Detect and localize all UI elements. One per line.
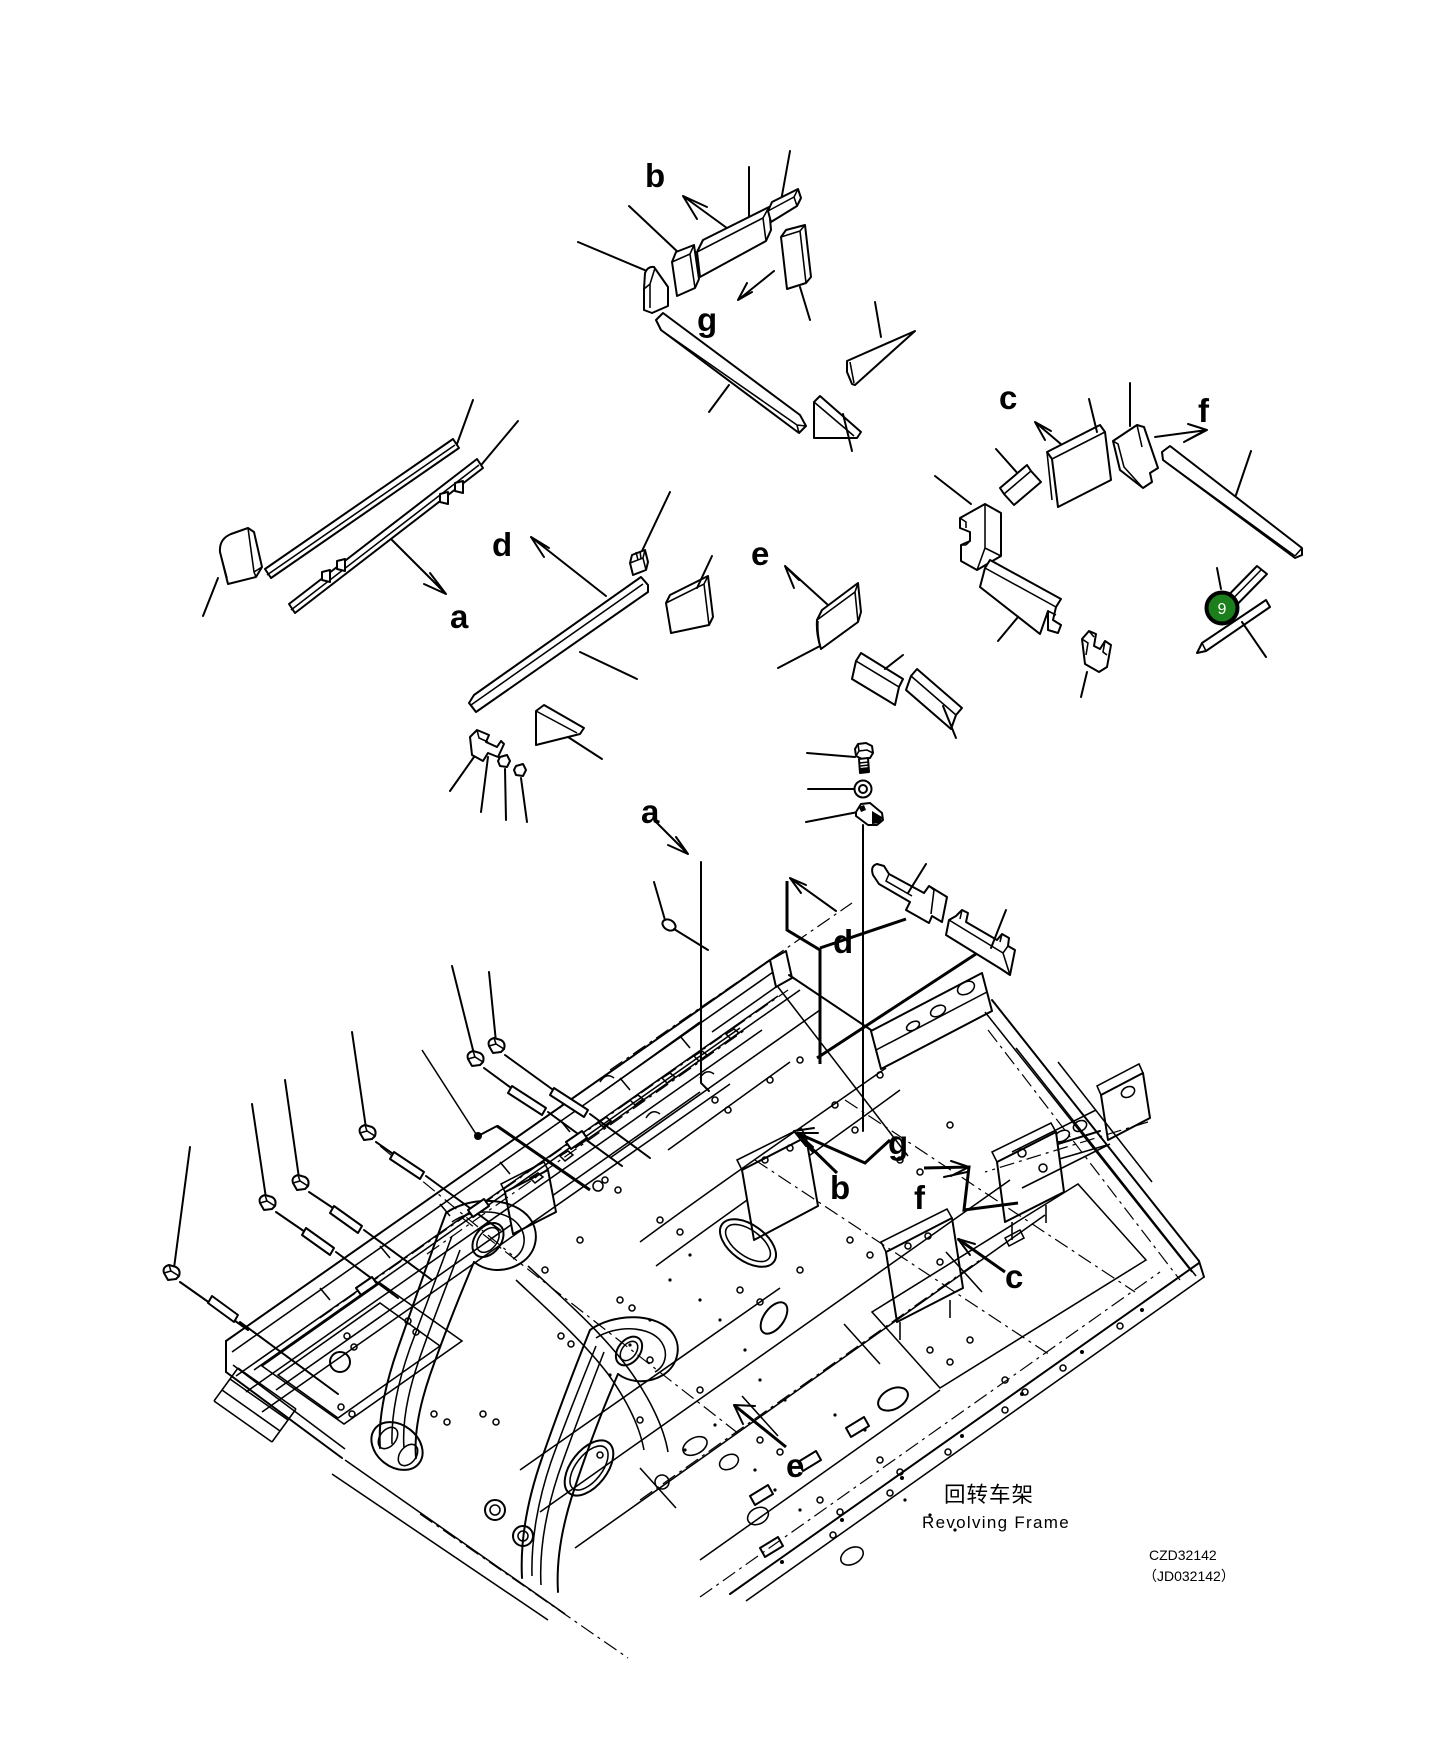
svg-text:CZD32142: CZD32142 <box>1149 1547 1217 1563</box>
svg-text:f: f <box>1198 392 1210 429</box>
svg-text:c: c <box>1005 1258 1023 1295</box>
svg-text:g: g <box>697 301 717 338</box>
svg-text:e: e <box>786 1447 804 1484</box>
svg-text:f: f <box>914 1179 926 1216</box>
svg-text:g: g <box>888 1124 908 1161</box>
svg-text:（JD032142）: （JD032142） <box>1143 1568 1235 1584</box>
svg-text:Revolving Frame: Revolving Frame <box>922 1513 1070 1532</box>
svg-text:回转车架: 回转车架 <box>944 1483 1034 1507</box>
svg-text:d: d <box>492 526 512 563</box>
svg-text:b: b <box>645 157 665 194</box>
svg-text:b: b <box>830 1169 850 1206</box>
svg-text:a: a <box>450 598 469 635</box>
svg-text:9: 9 <box>1218 601 1227 618</box>
svg-text:e: e <box>751 535 769 572</box>
svg-text:c: c <box>999 379 1017 416</box>
